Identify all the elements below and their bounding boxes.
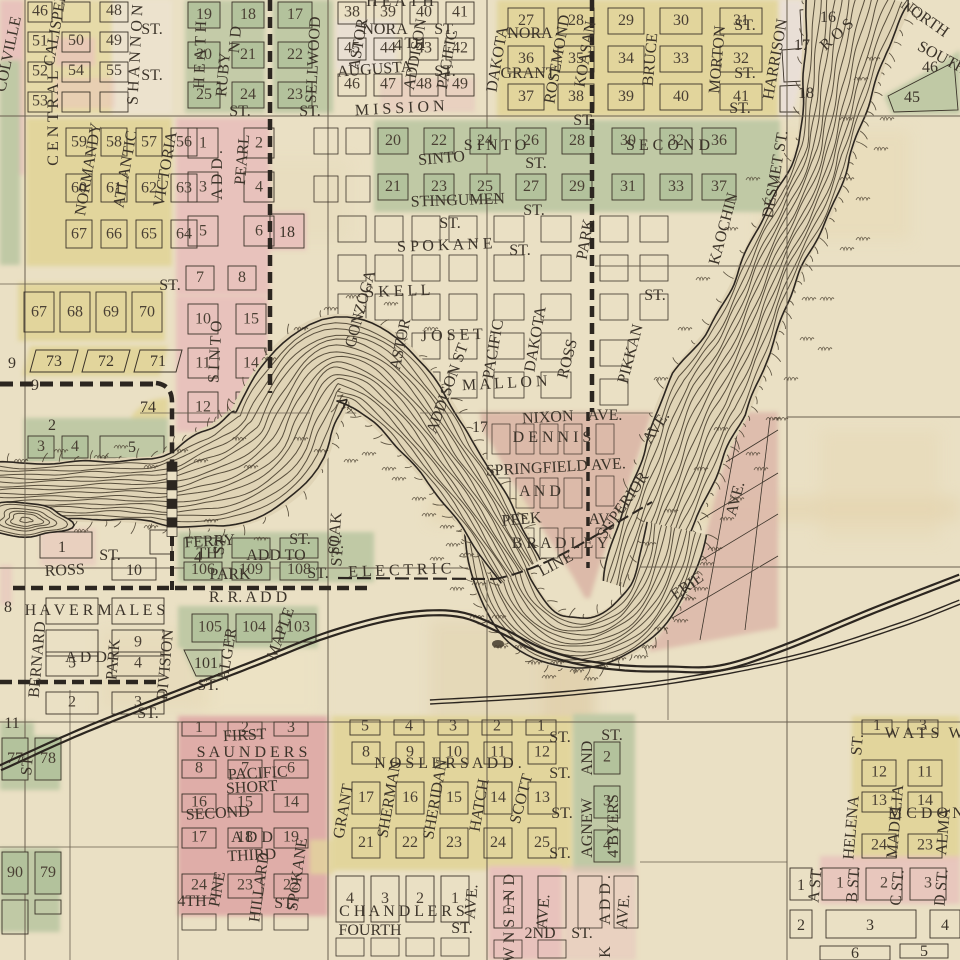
svg-text:S I N T O: S I N T O (205, 320, 225, 383)
svg-text:1: 1 (58, 539, 66, 556)
svg-text:SHORT: SHORT (226, 778, 279, 798)
svg-text:J O S E T: J O S E T (421, 326, 484, 345)
svg-text:21: 21 (358, 834, 374, 851)
svg-text:22: 22 (402, 834, 418, 851)
svg-text:ST.: ST. (601, 727, 622, 744)
svg-text:3: 3 (37, 438, 45, 455)
svg-text:ST.: ST. (549, 765, 570, 782)
svg-text:K: K (597, 946, 614, 958)
svg-text:ST.: ST. (439, 215, 460, 232)
svg-text:39: 39 (618, 88, 634, 105)
svg-text:15: 15 (446, 789, 462, 806)
svg-text:74: 74 (140, 399, 156, 416)
svg-text:41: 41 (452, 4, 468, 21)
svg-text:6: 6 (287, 760, 295, 777)
svg-text:54: 54 (68, 62, 84, 79)
svg-text:E L E C T R I C: E L E C T R I C (348, 560, 452, 581)
svg-text:ST.: ST. (229, 103, 250, 120)
svg-text:B R A D L E Y: B R A D L E Y (512, 535, 609, 552)
svg-text:49: 49 (106, 32, 122, 49)
svg-text:ST.: ST. (734, 17, 755, 34)
svg-text:46: 46 (32, 3, 48, 20)
svg-text:17: 17 (472, 419, 488, 436)
svg-text:11: 11 (917, 764, 932, 781)
svg-text:24: 24 (490, 834, 506, 851)
svg-text:ST.: ST. (551, 805, 572, 822)
svg-text:22: 22 (287, 46, 303, 63)
svg-text:55: 55 (106, 62, 122, 79)
svg-text:C H A N D L E R S: C H A N D L E R S (339, 903, 465, 920)
svg-text:N D: N D (226, 25, 245, 53)
svg-text:NIXON: NIXON (522, 408, 575, 428)
svg-text:STINGUMEN: STINGUMEN (410, 190, 505, 210)
svg-text:8: 8 (4, 599, 12, 616)
svg-text:D ST.: D ST. (931, 868, 951, 906)
svg-text:ADD TO: ADD TO (246, 547, 305, 564)
svg-text:2: 2 (797, 917, 805, 934)
svg-text:27: 27 (523, 178, 539, 195)
svg-text:FIRST: FIRST (223, 726, 268, 745)
svg-text:ST.: ST. (274, 895, 295, 912)
svg-text:40: 40 (673, 88, 689, 105)
svg-text:48: 48 (106, 2, 122, 19)
svg-text:ST.: ST. (141, 21, 162, 38)
svg-text:SECOND: SECOND (185, 803, 250, 823)
svg-text:AVE.: AVE. (614, 894, 634, 930)
svg-text:ST.: ST. (289, 531, 310, 548)
svg-text:PEEK: PEEK (501, 509, 543, 529)
svg-text:3: 3 (449, 718, 457, 735)
svg-text:ST.: ST. (328, 544, 347, 567)
svg-text:70: 70 (139, 304, 155, 321)
svg-text:21: 21 (385, 178, 401, 195)
svg-text:24: 24 (240, 86, 256, 103)
svg-text:104: 104 (242, 619, 266, 636)
svg-text:47: 47 (380, 76, 396, 93)
svg-text:17: 17 (191, 829, 207, 846)
svg-text:17: 17 (287, 6, 303, 23)
svg-text:W: W (948, 725, 960, 742)
svg-text:2: 2 (255, 134, 263, 151)
svg-text:72: 72 (98, 353, 114, 370)
svg-text:ST.: ST. (99, 547, 120, 564)
svg-text:H E A T H: H E A T H (191, 20, 210, 89)
svg-text:3: 3 (866, 917, 874, 934)
svg-text:17: 17 (358, 789, 374, 806)
svg-text:A D D .: A D D . (209, 150, 226, 200)
svg-text:2: 2 (880, 875, 888, 892)
svg-text:ST.: ST. (451, 920, 472, 937)
svg-text:13: 13 (871, 792, 887, 809)
svg-text:33: 33 (673, 50, 689, 67)
svg-text:11: 11 (4, 715, 19, 732)
svg-text:AVE.: AVE. (462, 884, 482, 920)
svg-text:64: 64 (176, 225, 192, 242)
svg-text:33: 33 (668, 178, 684, 195)
svg-text:9: 9 (8, 355, 16, 372)
svg-text:B ST.: B ST. (843, 866, 863, 904)
svg-text:30: 30 (673, 12, 689, 29)
svg-text:ST.: ST. (141, 67, 162, 84)
svg-text:FOURTH: FOURTH (338, 922, 401, 939)
svg-text:50: 50 (68, 32, 84, 49)
svg-text:TH: TH (404, 35, 426, 52)
svg-text:W N S E N D: W N S E N D (501, 874, 518, 960)
svg-text:ST.: ST. (197, 677, 218, 694)
svg-text:ST.: ST. (525, 155, 546, 172)
svg-text:34: 34 (618, 50, 634, 67)
svg-text:17: 17 (794, 37, 810, 54)
svg-text:1: 1 (836, 875, 844, 892)
svg-text:14: 14 (283, 794, 299, 811)
svg-text:1: 1 (873, 717, 881, 734)
svg-text:H E A T H: H E A T H (366, 0, 434, 10)
svg-text:37: 37 (518, 88, 534, 105)
svg-text:90: 90 (7, 864, 23, 881)
svg-text:101: 101 (194, 655, 218, 672)
svg-text:ST.: ST. (571, 925, 592, 942)
svg-text:ST.: ST. (734, 65, 755, 82)
svg-text:3: 3 (924, 875, 932, 892)
svg-text:TH: TH (196, 545, 218, 562)
svg-text:1: 1 (797, 877, 805, 894)
svg-text:79: 79 (40, 864, 56, 881)
svg-text:4: 4 (255, 178, 263, 195)
svg-text:ROSS: ROSS (44, 561, 85, 580)
svg-text:PARK: PARK (103, 638, 124, 681)
svg-text:105: 105 (198, 619, 222, 636)
svg-text:ST.: ST. (523, 202, 544, 219)
svg-text:36: 36 (711, 132, 727, 149)
svg-text:67: 67 (31, 304, 47, 321)
svg-text:2: 2 (493, 718, 501, 735)
svg-text:10: 10 (126, 562, 142, 579)
svg-text:ST.: ST. (848, 733, 867, 756)
svg-text:3: 3 (199, 178, 207, 195)
svg-text:C E N T R A L: C E N T R A L (45, 70, 62, 165)
svg-text:ST.: ST. (307, 565, 328, 582)
svg-text:ST.: ST. (573, 112, 594, 129)
svg-text:2: 2 (603, 749, 611, 766)
svg-text:6: 6 (851, 945, 859, 960)
svg-text:AGNEW: AGNEW (579, 797, 596, 857)
svg-text:13: 13 (534, 789, 550, 806)
svg-text:23: 23 (287, 86, 303, 103)
svg-text:68: 68 (67, 304, 83, 321)
svg-text:W A T S: W A T S (885, 725, 940, 742)
svg-text:29: 29 (569, 178, 585, 195)
svg-text:45: 45 (904, 89, 920, 106)
svg-text:S A U N D E R S: S A U N D E R S (197, 744, 308, 761)
svg-text:2ND: 2ND (524, 925, 555, 942)
svg-text:38: 38 (568, 88, 584, 105)
svg-text:ST.: ST. (434, 63, 455, 80)
svg-text:16: 16 (402, 789, 418, 806)
svg-text:29: 29 (618, 12, 634, 29)
svg-text:5: 5 (920, 943, 928, 960)
svg-text:8: 8 (362, 744, 370, 761)
svg-text:ST.: ST. (549, 845, 570, 862)
svg-text:A ST.: A ST. (805, 866, 825, 904)
svg-text:23: 23 (446, 834, 462, 851)
svg-text:3: 3 (287, 719, 295, 736)
svg-text:4: 4 (405, 718, 413, 735)
svg-text:ST.: ST. (434, 21, 455, 38)
svg-text:18: 18 (279, 224, 295, 241)
svg-text:4TH: 4TH (177, 893, 207, 910)
svg-text:8: 8 (195, 760, 203, 777)
svg-text:S E C O N D: S E C O N D (626, 137, 710, 154)
svg-text:ST.: ST. (18, 753, 37, 776)
svg-text:28: 28 (569, 132, 585, 149)
svg-text:23: 23 (917, 837, 933, 854)
svg-text:1: 1 (199, 134, 207, 151)
svg-text:5: 5 (361, 718, 369, 735)
svg-text:31: 31 (620, 178, 636, 195)
svg-text:OAK: OAK (326, 511, 346, 547)
svg-text:1: 1 (537, 718, 545, 735)
svg-text:ST.: ST. (509, 242, 530, 259)
svg-text:8: 8 (238, 269, 246, 286)
svg-text:ST.: ST. (644, 287, 665, 304)
svg-text:2: 2 (68, 694, 76, 711)
svg-text:AVE.: AVE. (588, 407, 623, 424)
svg-text:C ST.: C ST. (887, 869, 907, 907)
svg-text:46: 46 (922, 59, 938, 76)
svg-text:18: 18 (798, 85, 814, 102)
svg-text:12: 12 (534, 744, 550, 761)
svg-text:A D D: A D D (231, 829, 273, 846)
svg-text:ST.: ST. (159, 277, 180, 294)
svg-text:9: 9 (31, 377, 39, 394)
svg-text:58: 58 (106, 133, 122, 150)
svg-text:20: 20 (385, 132, 401, 149)
svg-text:65: 65 (141, 225, 157, 242)
svg-text:A N D: A N D (519, 483, 561, 500)
svg-text:S P O K A N E: S P O K A N E (397, 235, 493, 255)
svg-text:ST.: ST. (549, 729, 570, 746)
svg-text:67: 67 (71, 225, 87, 242)
svg-text:19: 19 (196, 6, 212, 23)
svg-text:PARK: PARK (209, 566, 251, 583)
svg-text:71: 71 (150, 353, 166, 370)
svg-text:66: 66 (106, 225, 122, 242)
svg-text:7: 7 (196, 269, 204, 286)
svg-text:ST.: ST. (729, 100, 750, 117)
svg-text:4: 4 (134, 655, 142, 672)
svg-text:24: 24 (191, 877, 207, 894)
svg-text:R. R. A D D: R. R. A D D (209, 589, 287, 606)
svg-text:63: 63 (176, 179, 192, 196)
svg-text:H A V E R M A L E S: H A V E R M A L E S (25, 602, 166, 619)
svg-text:25: 25 (534, 834, 550, 851)
svg-text:5: 5 (128, 439, 136, 456)
svg-text:69: 69 (103, 304, 119, 321)
svg-text:6: 6 (255, 222, 263, 239)
svg-text:4: 4 (394, 37, 402, 54)
svg-text:57: 57 (141, 133, 157, 150)
svg-text:AND: AND (579, 741, 596, 776)
svg-text:NORA: NORA (507, 25, 553, 42)
svg-text:A D D .: A D D . (597, 875, 614, 925)
svg-text:73: 73 (46, 353, 62, 370)
svg-text:5: 5 (199, 222, 207, 239)
svg-text:NORA: NORA (362, 21, 408, 38)
svg-text:D E N N I S: D E N N I S (513, 429, 592, 446)
svg-text:16: 16 (820, 9, 836, 26)
svg-text:14: 14 (490, 789, 506, 806)
svg-text:ST.: ST. (137, 705, 158, 722)
svg-text:4: 4 (71, 438, 79, 455)
svg-text:ST.: ST. (299, 103, 320, 120)
svg-text:4: 4 (941, 917, 949, 934)
svg-text:1: 1 (195, 719, 203, 736)
svg-text:S I N T O: S I N T O (464, 137, 527, 154)
svg-text:2: 2 (48, 417, 56, 434)
svg-text:22: 22 (431, 132, 447, 149)
svg-text:12: 12 (871, 764, 887, 781)
svg-text:15: 15 (243, 310, 259, 327)
svg-text:4 BYERS: 4 BYERS (605, 794, 622, 858)
svg-text:9: 9 (134, 634, 142, 651)
svg-text:18: 18 (240, 6, 256, 23)
